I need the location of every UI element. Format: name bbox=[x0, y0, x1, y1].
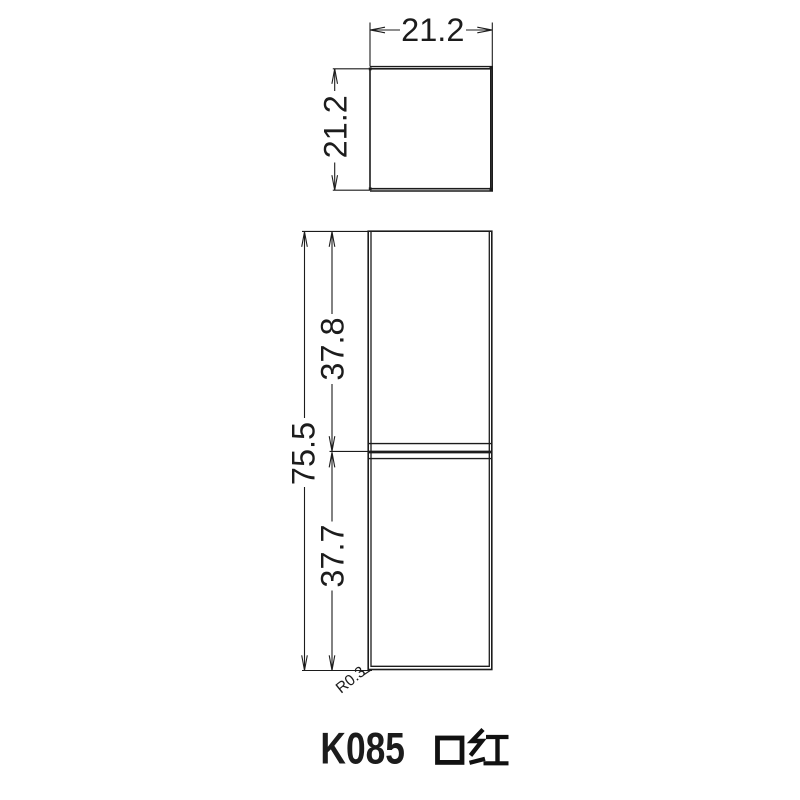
svg-text:37.7: 37.7 bbox=[315, 524, 351, 587]
svg-text:21.2: 21.2 bbox=[318, 95, 354, 158]
svg-text:R0.3: R0.3 bbox=[333, 663, 369, 697]
svg-text:75.5: 75.5 bbox=[285, 422, 321, 485]
svg-text:21.2: 21.2 bbox=[401, 12, 464, 48]
svg-text:37.8: 37.8 bbox=[314, 317, 350, 380]
svg-text:K085: K085 bbox=[320, 724, 405, 774]
